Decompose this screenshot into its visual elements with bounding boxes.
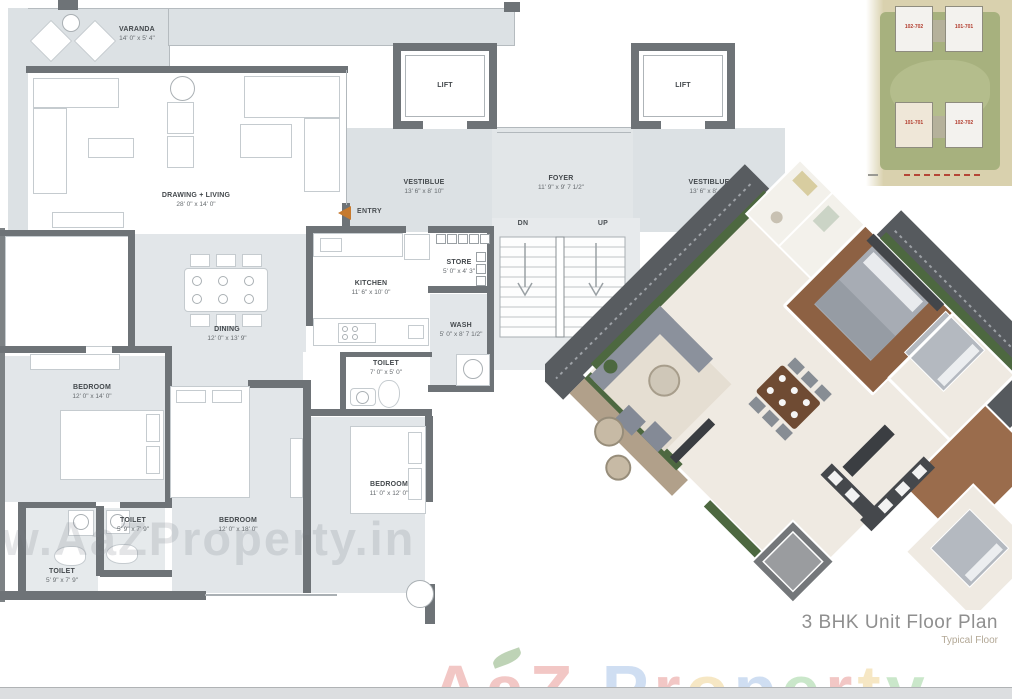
room-label-toilet-a: TOILET 5' 9" x 7' 9" [22,568,102,585]
plate [218,276,228,286]
adjacent-room [5,236,130,347]
site-building-core [933,20,945,42]
shower-drain [406,580,434,608]
bedroom1-pillow [146,414,160,442]
bedroom2-pillow [176,390,206,403]
wall-bedroom2-top [248,380,308,388]
coffee-table-1 [88,138,134,158]
burner [342,326,348,332]
site-key-plan: 102-702 101-701 101-701 102-702 [866,0,1012,186]
varanda-left-strip [8,8,28,232]
plate [218,294,228,304]
fridge [404,234,430,260]
wall-toiletb-bottom [100,570,172,577]
page-subtitle: Typical Floor [802,635,998,646]
stairs-down-label: DN [503,220,543,227]
bedroom1-pillow [146,446,160,474]
room-label-vestibule1: VESTIBLUE 13' 6" x 8' 10" [379,179,469,196]
room-label-drawing-living: DRAWING + LIVING 28' 0" x 14' 0" [146,192,246,209]
plate [192,276,202,286]
room-label-kitchen: KITCHEN 11' 6" x 10' 0" [326,280,416,297]
sofa-2-back [244,76,340,118]
site-unit-label: 101-701 [895,120,933,126]
room-label-bedroom1: BEDROOM 12' 0" x 14' 0" [47,384,137,401]
varanda-area-strip [168,8,515,46]
plate [244,276,254,286]
coffee-table-2 [240,124,292,158]
line-band-1 [497,127,631,128]
wall-stub-top-right [504,2,520,12]
basin-bowl [356,391,369,404]
wall-bedroom1-top-b [112,346,172,353]
site-unit-label: 102-702 [895,24,933,30]
bedroom2-pillow [212,390,242,403]
wall-kitchen-top [306,226,406,233]
wall-stub-top-left [58,0,78,10]
entry-label: ENTRY [357,208,382,215]
burner [352,326,358,332]
wall-toilets-top-b [120,502,172,508]
isometric-3d-plan [545,145,1012,610]
plate [244,294,254,304]
site-unit-label: 102-702 [945,120,983,126]
page-title: 3 BHK Unit Floor Plan [802,612,998,634]
wall-adjacent-top [0,230,134,236]
dining-table [184,268,268,312]
site-unit-label: 101-701 [945,24,983,30]
dining-chair [190,254,210,267]
wall-bedroom3-top [311,409,432,416]
site-legend-marks [904,174,980,176]
dining-chair [242,254,262,267]
room-label-varanda: VARANDA 14' 0" x 5' 4" [92,26,182,43]
line-balcony-bottom [205,594,337,596]
burner [342,334,348,340]
room-label-toilet-kitchen: TOILET 7' 0" x 5' 0" [346,360,426,377]
wall-toilets-top-a [18,502,96,508]
floor-plan-sheet: VARANDA 14' 0" x 5' 4" DRAWING + LIVING … [0,0,1012,699]
store-shelf [436,234,446,244]
plate [192,294,202,304]
wall-bedroom1-top-a [0,346,86,353]
store-shelf [476,276,486,286]
sofa-2-side [304,118,340,192]
washing-machine-drum [463,359,483,379]
room-label-lift1: LIFT [405,82,485,91]
rattan-chair-3d [601,451,635,485]
entry-arrow-icon [338,206,351,220]
wc-kitchen-toilet [378,380,400,408]
title-block: 3 BHK Unit Floor Plan Typical Floor [802,612,998,646]
armchair-1 [167,102,194,134]
bedroom1-wardrobe [30,354,120,370]
wall-store-top [428,226,494,233]
store-shelf [458,234,468,244]
bedroom3-pillow [408,432,422,464]
store-shelf [469,234,479,244]
room-label-dining: DINING 12' 0" x 13' 9" [182,326,272,343]
room-label-lift2: LIFT [643,82,723,91]
line-drawing-right [346,70,347,205]
site-building-core [933,116,945,138]
sofa-l-side [33,108,67,194]
veranda-table [62,14,80,32]
wall-toiletk-top [340,352,432,357]
store-shelf [480,234,490,244]
wall-store-bottom [428,286,488,293]
wall-kitchen-left [306,226,313,326]
tv-unit [52,212,124,228]
site-legend-dash [868,174,878,176]
room-label-store: STORE 5' 0" x 4' 3" [419,259,499,276]
wall-drawing-top [26,66,348,73]
url-watermark: www.AaZProperty.in [0,511,415,566]
sofa-l-back [33,78,119,108]
dining-chair [216,254,236,267]
room-label-bedroom3: BEDROOM 11' 0" x 12' 0" [344,481,434,498]
lift2-door [661,121,705,129]
room-label-wash: WASH 5' 0" x 8' 7 1/2" [421,322,501,339]
wall-wash-bottom [428,385,494,392]
bottom-bar [0,687,1012,699]
store-shelf [447,234,457,244]
wall-bottom-main [0,591,206,600]
bedroom2-wardrobe [290,438,303,498]
kitchen-sink [320,238,342,252]
plant-pot [170,76,195,101]
line-band-2 [497,132,631,133]
wall-adjacent-right [128,230,135,352]
burner [352,334,358,340]
armchair-2 [167,136,194,168]
lift1-door [423,121,467,129]
